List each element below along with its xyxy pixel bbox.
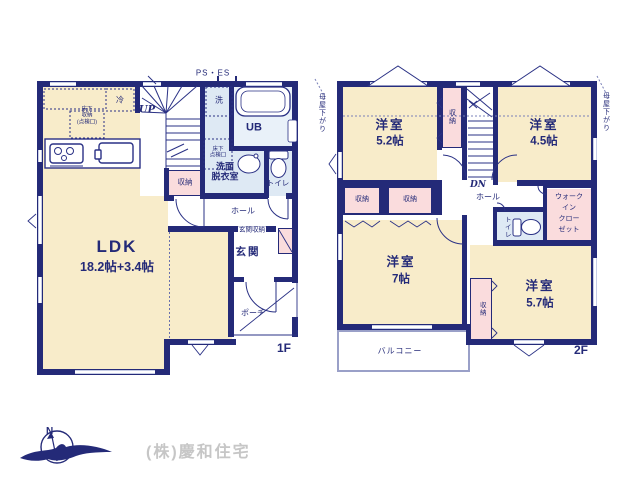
label-ldk-size: 18.2帖+3.4帖 bbox=[80, 260, 154, 274]
label-closet-1f: 収納 bbox=[178, 179, 193, 188]
label-room-5-7: 洋室 bbox=[525, 279, 554, 293]
window-ticks-2f bbox=[329, 154, 544, 356]
label-underfloor-storage: 床下 収納 (点検口) bbox=[77, 107, 97, 126]
label-genkan-storage: 玄関収納 bbox=[238, 226, 266, 233]
label-room-7: 洋室 bbox=[386, 255, 415, 269]
closet-door-marks-2f bbox=[345, 98, 497, 338]
label-floor-2f: 2F bbox=[574, 344, 588, 358]
label-room-5-7-size: 5.7帖 bbox=[526, 297, 554, 310]
toilet-1f-icon bbox=[269, 151, 288, 178]
label-room-4-5: 洋室 bbox=[529, 118, 558, 132]
label-dn: DN bbox=[470, 180, 486, 190]
kitchen-counter bbox=[45, 139, 140, 168]
label-toilet-1f: トイレ bbox=[267, 180, 290, 189]
vent-arrow bbox=[148, 76, 156, 84]
compass-north-letter: N bbox=[46, 426, 53, 437]
label-hall-2f: ホール bbox=[476, 192, 500, 201]
stairs-2f bbox=[467, 89, 493, 177]
label-toilet-2f: トイレ bbox=[503, 216, 510, 239]
label-room-5-2-size: 5.2帖 bbox=[376, 135, 404, 148]
roof-windows-2f bbox=[368, 66, 570, 86]
label-up: UP bbox=[139, 104, 155, 116]
window-ticks-1f bbox=[28, 214, 208, 355]
label-underfloor-hatch: 床下 点検口 bbox=[210, 147, 227, 160]
label-washroom: 洗面 脱衣室 bbox=[211, 162, 238, 183]
label-closet-left: 収納 bbox=[355, 196, 369, 204]
doors-1f bbox=[176, 199, 288, 312]
label-hall-1f: ホール bbox=[231, 206, 255, 215]
vanity-sink-icon bbox=[238, 154, 260, 173]
toilet-2f-icon bbox=[513, 219, 541, 236]
stairs-1f bbox=[142, 76, 200, 168]
label-fridge: 冷 bbox=[116, 95, 124, 104]
company-name: (株)慶和住宅 bbox=[146, 438, 251, 462]
floorplan-canvas: N PS・ES 冷 床下 収納 (点検口) UP 洗 床下 点検口 UB 洗面 … bbox=[0, 0, 640, 480]
label-closet-mid: 収納 bbox=[403, 196, 417, 204]
sink-icon bbox=[99, 143, 133, 163]
label-washer: 洗 bbox=[215, 95, 223, 104]
label-ldk: LDK bbox=[97, 237, 138, 257]
label-room-4-5-size: 4.5帖 bbox=[530, 135, 558, 148]
label-room-5-2: 洋室 bbox=[375, 118, 404, 132]
label-ub: UB bbox=[246, 122, 262, 135]
label-room-7-size: 7帖 bbox=[392, 273, 410, 286]
label-moya-left: 母屋下がり bbox=[319, 93, 326, 133]
label-floor-1f: 1F bbox=[277, 342, 291, 356]
label-closet-strip-top: 収納 bbox=[449, 109, 456, 125]
label-wic: ウォークイン クローゼット bbox=[555, 192, 583, 235]
label-porch: ポーチ bbox=[241, 308, 265, 317]
label-closet-strip-bottom: 収納 bbox=[478, 302, 485, 317]
label-moya-right: 母屋下がり bbox=[603, 92, 610, 132]
genkan-storage-mark bbox=[279, 230, 292, 252]
compass-icon: N bbox=[20, 426, 112, 463]
label-balcony: バルコニー bbox=[378, 346, 423, 355]
label-ps-es: PS・ES bbox=[196, 68, 230, 77]
label-genkan: 玄関 bbox=[236, 246, 261, 258]
